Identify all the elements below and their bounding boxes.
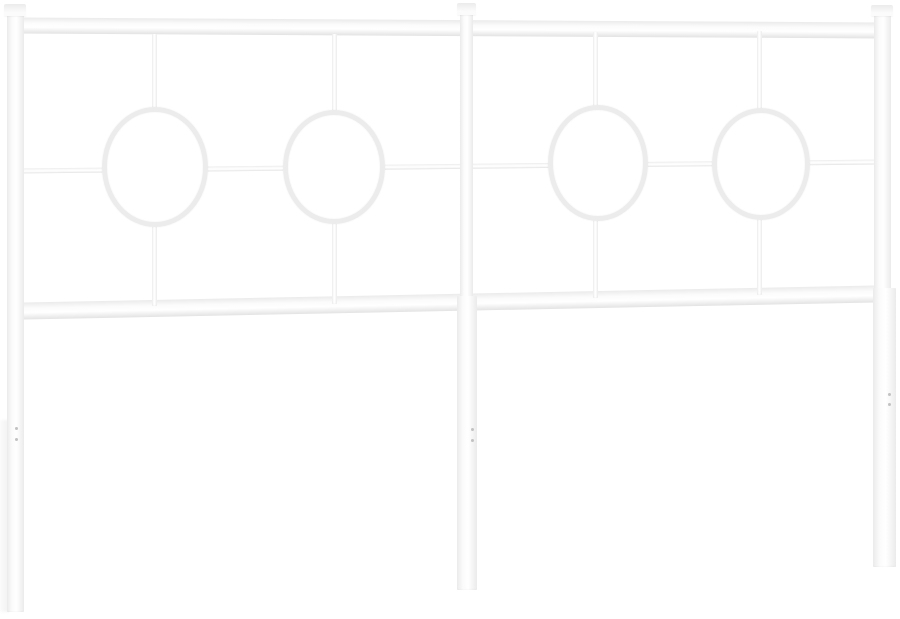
center-leg-screw-hole-bottom: [471, 439, 474, 442]
top-rail: [16, 18, 882, 39]
decor-ring-4: [712, 108, 810, 220]
decor-ring-3: [548, 105, 648, 221]
center-leg: [457, 296, 477, 590]
decor-ring-2: [283, 110, 385, 224]
right-leg: [873, 288, 896, 567]
center-post: [460, 14, 473, 304]
center-leg-screw-hole-top: [471, 428, 474, 431]
left-leg-screw-hole-bottom: [15, 438, 18, 441]
decor-ring-1: [102, 107, 208, 227]
center-post-finial: [457, 3, 476, 15]
right-post: [874, 15, 891, 295]
bottom-rail: [16, 285, 882, 319]
left-leg-screw-hole-top: [15, 427, 18, 430]
right-leg-screw-hole-top: [888, 393, 891, 396]
right-leg-screw-hole-bottom: [888, 403, 891, 406]
headboard-product-photo: [0, 0, 900, 619]
left-post-finial: [4, 4, 26, 16]
left-post: [7, 15, 24, 612]
right-post-finial: [871, 5, 893, 16]
